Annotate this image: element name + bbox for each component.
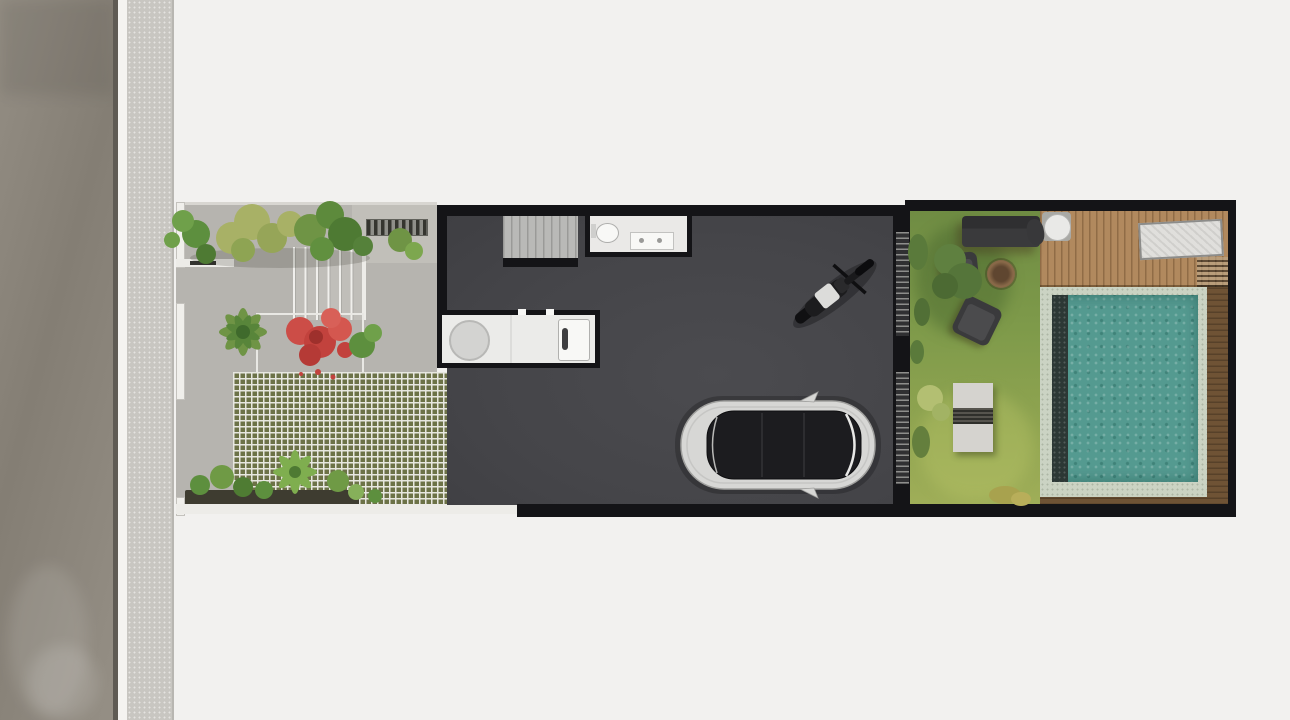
site-plan-rendering <box>0 0 1290 720</box>
fern-row <box>190 450 382 503</box>
motorcycle <box>779 243 887 340</box>
palm-plant <box>219 308 267 356</box>
rear-garden-bushes <box>908 234 1031 506</box>
green-bush <box>349 324 382 358</box>
red-flower-tree <box>286 308 353 380</box>
car <box>675 392 881 498</box>
tree-shadow <box>190 248 370 268</box>
plants-and-vehicles-layer <box>0 0 1290 720</box>
